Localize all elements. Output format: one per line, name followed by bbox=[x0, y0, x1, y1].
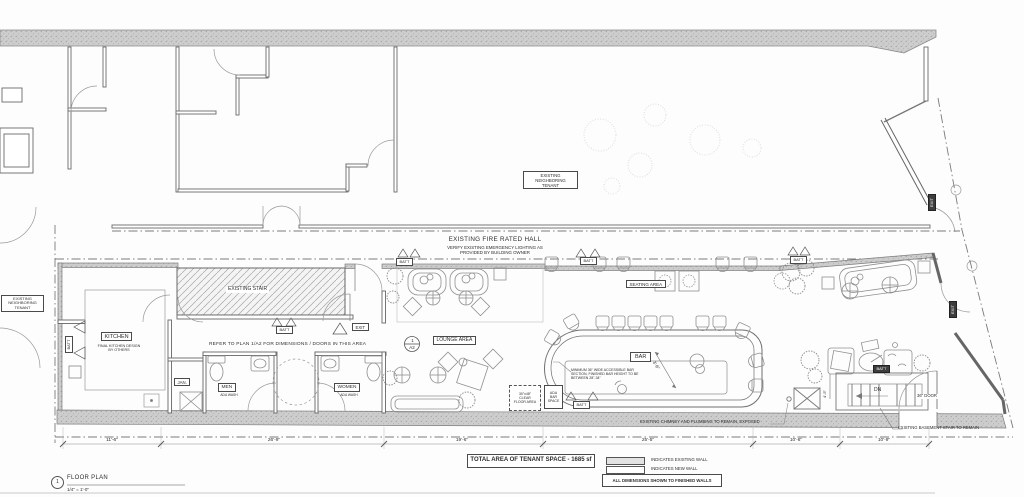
existing-stair-label: EXISTING STAIR bbox=[226, 287, 269, 293]
men-room-label: MEN bbox=[218, 383, 236, 392]
drawing-number-bubble: 1 bbox=[51, 476, 64, 489]
stair-width-dimension: 4'-5" bbox=[823, 390, 828, 398]
chimney-note: EXISTING CHIMNEY AND PLUMBING TO REMAIN,… bbox=[640, 420, 760, 425]
exit-sign: EXIT bbox=[352, 323, 369, 331]
callout-number: 1 bbox=[408, 338, 417, 343]
seating-area-label: SEATING AREA bbox=[626, 280, 666, 288]
batt-label: BATT bbox=[790, 256, 807, 264]
basement-stair-note: EXISTING BASEMENT STAIR TO REMAIN bbox=[898, 426, 979, 431]
dimension-label: 10'-6" bbox=[766, 438, 826, 444]
batt-label: BATT bbox=[276, 326, 293, 334]
kitchen-note: FINAL KITCHEN DESIGN BY OTHERS bbox=[88, 344, 150, 353]
total-area-box: TOTAL AREA OF TENANT SPACE - 1685 sf bbox=[467, 454, 595, 468]
lounge-right-furniture bbox=[822, 259, 930, 375]
dimensions-note-box: ALL DIMENSIONS SHOWN TO FINISHED WALLS bbox=[602, 474, 722, 487]
dimension-label: 19'-6" bbox=[432, 438, 492, 444]
women-room-label: WOMEN bbox=[334, 383, 360, 392]
exit-sign-vertical: EXIT bbox=[949, 301, 957, 318]
bar-accessibility-note: MINIMUM 36" WIDE ACCESSIBLE BAR SECTION,… bbox=[571, 368, 641, 380]
upper-tenant-partitions bbox=[0, 47, 930, 228]
legend-new-wall-label: INDICATES NEW WALL bbox=[651, 466, 698, 471]
neighboring-tenant-label-left: EXISTING NEIGHBORING TENANT bbox=[1, 295, 44, 312]
dimension-label: 26'-9" bbox=[244, 438, 304, 444]
kitchen-label: KITCHEN bbox=[101, 332, 132, 341]
men-ada-note: ADA WASH bbox=[214, 394, 244, 398]
ada-bar-space-label: ADA BAR SPACE bbox=[544, 385, 563, 409]
refer-note: REFER TO PLAN 1/A2 FOR DIMENSIONS / DOOR… bbox=[209, 342, 366, 348]
janitor-label: JAN. bbox=[174, 378, 190, 386]
batt-label: BATT bbox=[573, 401, 590, 409]
existing-stair-hatch bbox=[177, 264, 382, 322]
legend-existing-wall-label: INDICATES EXISTING WALL bbox=[651, 457, 708, 462]
top-existing-wall bbox=[0, 30, 936, 53]
exit-sign-vertical: EXIT bbox=[928, 194, 936, 211]
batt-label: BATT bbox=[580, 257, 597, 265]
batt-label-vertical: BATT bbox=[65, 336, 73, 353]
lounge-right-plants bbox=[782, 260, 930, 383]
lounge-area-label-left: LOUNGE AREA bbox=[433, 336, 476, 345]
fire-hall-note: VERIFY EXISTING EMERGENCY LIGHTING AS PR… bbox=[425, 245, 565, 255]
batt-label: BATT bbox=[396, 258, 413, 266]
upper-right-walls bbox=[881, 47, 977, 271]
right-side-walls bbox=[933, 253, 1005, 414]
bar-label: BAR bbox=[630, 352, 651, 362]
faint-plants-upper bbox=[584, 104, 761, 194]
door-36 bbox=[899, 371, 937, 409]
dimension-label: 10'-9" bbox=[854, 438, 914, 444]
floor-plan-page: EXISTING NEIGHBORING TENANT EXISTING NEI… bbox=[0, 0, 1024, 497]
clear-floor-area-label: 30"x48" CLEAR FLOOR AREA bbox=[509, 385, 541, 411]
drawing-scale: 1/4" = 1'-0" bbox=[67, 487, 89, 492]
callout-sheet: A2 bbox=[406, 345, 418, 350]
women-ada-note: ADA WASH bbox=[332, 394, 366, 398]
door-36-label: 36" DOOR bbox=[916, 394, 938, 399]
drawing-title: FLOOR PLAN bbox=[67, 475, 108, 482]
legend-new-wall-swatch bbox=[606, 466, 645, 474]
batt-label: BATT bbox=[873, 365, 890, 373]
legend-existing-wall-swatch bbox=[606, 457, 645, 465]
stair-dn-label: DN bbox=[874, 388, 881, 394]
dimension-label: 11'-6" bbox=[82, 438, 142, 444]
fire-hall-title: EXISTING FIRE RATED HALL bbox=[425, 236, 565, 243]
dimension-label: 25'-5" bbox=[618, 438, 678, 444]
neighboring-tenant-label-top: EXISTING NEIGHBORING TENANT bbox=[523, 171, 578, 189]
chimney-box bbox=[787, 388, 820, 409]
